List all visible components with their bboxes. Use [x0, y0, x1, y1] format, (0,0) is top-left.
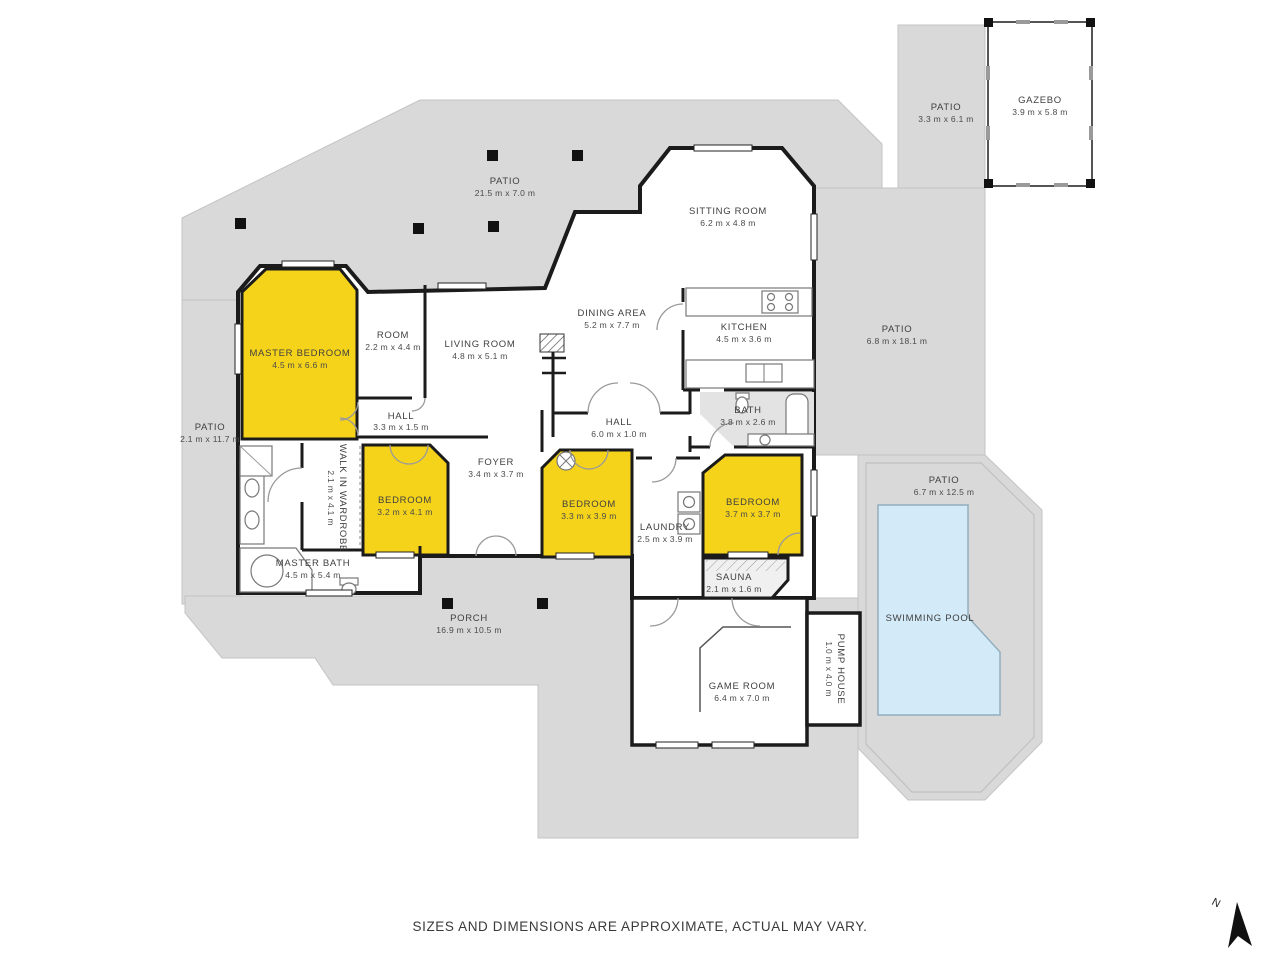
- label-bath: BATH: [734, 405, 761, 416]
- label-foyer-dims: 3.4 m x 3.7 m: [468, 469, 523, 479]
- label-sauna: SAUNA: [716, 572, 752, 583]
- label-patio-left-dims: 2.1 m x 11.7 m: [180, 434, 240, 444]
- label-game-room-dims: 6.4 m x 7.0 m: [714, 693, 769, 703]
- label-swimming-pool: SWIMMING POOL: [886, 613, 975, 624]
- label-sitting-room: SITTING ROOM: [689, 206, 767, 217]
- label-hall-east: HALL: [606, 417, 633, 428]
- label-laundry: LAUNDRY: [640, 522, 690, 533]
- disclaimer-text: SIZES AND DIMENSIONS ARE APPROXIMATE, AC…: [412, 919, 867, 934]
- compass: N: [1210, 896, 1252, 948]
- label-hall-west: HALL: [388, 411, 415, 422]
- label-patio-top-dims: 21.5 m x 7.0 m: [475, 188, 535, 198]
- label-bedroom-west-dims: 3.2 m x 4.1 m: [377, 507, 432, 517]
- label-bedroom-east-dims: 3.7 m x 3.7 m: [725, 509, 780, 519]
- label-pump-house: PUMP HOUSE: [835, 634, 846, 705]
- label-patio-pool-dims: 6.7 m x 12.5 m: [914, 487, 974, 497]
- label-gazebo: GAZEBO: [1018, 95, 1062, 106]
- patio-right-area: [814, 188, 985, 455]
- label-sauna-dims: 2.1 m x 1.6 m: [706, 584, 761, 594]
- label-walk-in-wardrobe-dims: 2.1 m x 4.1 m: [326, 470, 336, 525]
- label-room: ROOM: [377, 330, 409, 341]
- label-walk-in-wardrobe: WALK IN WARDROBE: [337, 444, 348, 552]
- label-patio-gazebo-dims: 3.3 m x 6.1 m: [918, 114, 973, 124]
- label-patio-right: PATIO: [882, 324, 913, 335]
- label-master-bath-dims: 4.5 m x 5.4 m: [285, 570, 340, 580]
- label-patio-top: PATIO: [490, 176, 521, 187]
- label-bedroom-center: BEDROOM: [562, 499, 616, 510]
- label-hall-west-dims: 3.3 m x 1.5 m: [373, 422, 428, 432]
- compass-north-label: N: [1210, 896, 1223, 910]
- label-bedroom-center-dims: 3.3 m x 3.9 m: [561, 511, 616, 521]
- label-bath-dims: 3.8 m x 2.6 m: [720, 417, 775, 427]
- label-patio-left: PATIO: [195, 422, 226, 433]
- label-patio-right-dims: 6.8 m x 18.1 m: [867, 336, 927, 346]
- label-living-room-dims: 4.8 m x 5.1 m: [452, 351, 507, 361]
- shower-fixture: [557, 452, 575, 470]
- label-master-bedroom-dims: 4.5 m x 6.6 m: [272, 360, 327, 370]
- label-master-bath: MASTER BATH: [276, 558, 351, 569]
- label-hall-east-dims: 6.0 m x 1.0 m: [591, 429, 646, 439]
- label-dining-area: DINING AREA: [578, 308, 647, 319]
- label-porch: PORCH: [450, 613, 488, 624]
- label-laundry-dims: 2.5 m x 3.9 m: [637, 534, 692, 544]
- label-dining-area-dims: 5.2 m x 7.7 m: [584, 320, 639, 330]
- label-game-room: GAME ROOM: [709, 681, 775, 692]
- label-patio-gazebo: PATIO: [931, 102, 962, 113]
- label-gazebo-dims: 3.9 m x 5.8 m: [1012, 107, 1067, 117]
- label-patio-pool: PATIO: [929, 475, 960, 486]
- label-porch-dims: 16.9 m x 10.5 m: [436, 625, 501, 635]
- game-room-outline: [632, 598, 807, 745]
- patio-left-strip-area: [182, 300, 240, 604]
- label-master-bedroom: MASTER BEDROOM: [249, 348, 350, 359]
- label-room-dims: 2.2 m x 4.4 m: [365, 342, 420, 352]
- label-kitchen: KITCHEN: [721, 322, 768, 333]
- label-living-room: LIVING ROOM: [444, 339, 515, 350]
- label-foyer: FOYER: [478, 457, 514, 468]
- label-kitchen-dims: 4.5 m x 3.6 m: [716, 334, 771, 344]
- floor-plan: PATIO 21.5 m x 7.0 m PATIO 3.3 m x 6.1 m…: [0, 0, 1280, 960]
- label-sitting-room-dims: 6.2 m x 4.8 m: [700, 218, 755, 228]
- compass-arrow-icon: [1228, 902, 1252, 948]
- label-pump-house-dims: 1.0 m x 4.0 m: [824, 641, 834, 696]
- sauna-bench-hatch: [706, 560, 785, 571]
- label-bedroom-east: BEDROOM: [726, 497, 780, 508]
- label-bedroom-west: BEDROOM: [378, 495, 432, 506]
